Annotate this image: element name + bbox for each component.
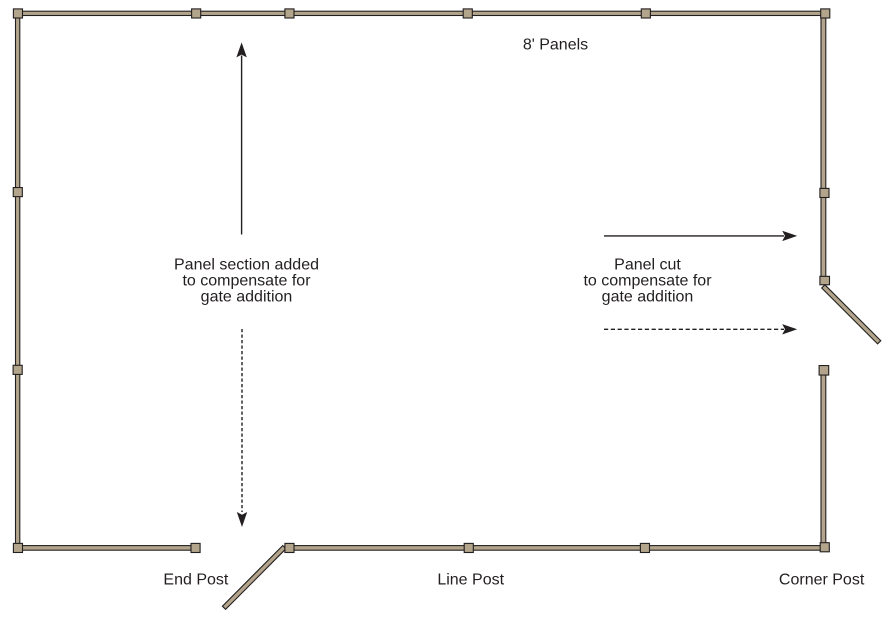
- svg-text:gate addition: gate addition: [602, 288, 694, 305]
- svg-text:End Post: End Post: [163, 572, 228, 589]
- svg-text:Panel cut: Panel cut: [614, 257, 681, 274]
- svg-text:to compensate for: to compensate for: [182, 273, 311, 290]
- svg-text:Panel section added: Panel section added: [174, 257, 319, 274]
- svg-text:8' Panels: 8' Panels: [523, 36, 588, 53]
- svg-text:Line Post: Line Post: [437, 572, 504, 589]
- svg-text:Corner Post: Corner Post: [779, 572, 865, 589]
- svg-text:to compensate for: to compensate for: [583, 273, 712, 290]
- svg-text:gate addition: gate addition: [201, 288, 293, 305]
